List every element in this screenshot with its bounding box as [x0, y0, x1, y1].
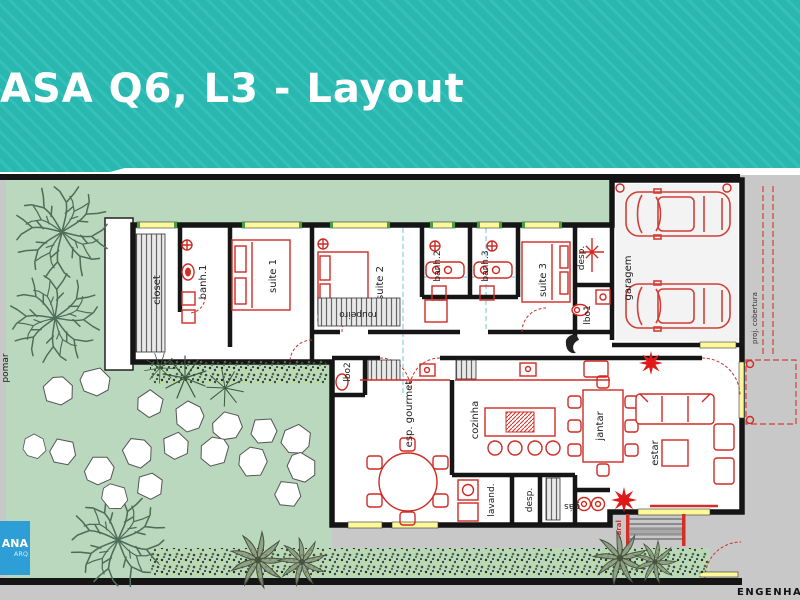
- room-label: estar: [650, 439, 661, 465]
- room-label: lbo1: [583, 305, 593, 324]
- room-label: suite 2: [375, 266, 386, 300]
- room-label: closet: [152, 275, 163, 305]
- room-label: banh.1: [198, 265, 209, 300]
- room-label: desp.: [525, 488, 535, 513]
- window: [700, 342, 736, 348]
- room-closet: closet: [136, 234, 165, 352]
- proj-cobertura-label: proj. cobertura: [751, 292, 759, 344]
- room-suite1: suite 1: [232, 240, 290, 310]
- plant-star-icon: [611, 487, 637, 513]
- room-label: gás: [564, 501, 580, 511]
- grill-icon: [368, 360, 400, 380]
- round-table-icon: [379, 453, 437, 511]
- room-label: lavand.: [487, 483, 497, 516]
- architect-logo: ANA ARQ: [0, 521, 30, 575]
- window: [330, 222, 390, 228]
- pomar-label: pomar: [1, 353, 11, 383]
- window: [137, 222, 177, 228]
- west-walkway: [105, 218, 133, 370]
- window: [477, 222, 502, 228]
- logo-line2: ARQ: [14, 550, 28, 558]
- logo-line1: ANA: [2, 538, 28, 550]
- room-label: banh.2: [433, 250, 443, 281]
- room-label: roupeiro: [339, 309, 377, 319]
- slide: closet banh.1 suite 1 suite 2 banh.2: [0, 0, 800, 600]
- room-label: jantar: [595, 410, 606, 441]
- window: [522, 222, 562, 228]
- bed-icon: [232, 240, 290, 310]
- window: [739, 362, 744, 418]
- room-label: garagem: [623, 256, 634, 301]
- window: [430, 222, 455, 228]
- room-label: banh.3: [481, 250, 491, 281]
- stove-icon: [506, 412, 534, 432]
- room-label: cozinha: [470, 401, 481, 439]
- window: [348, 522, 382, 528]
- window: [242, 222, 302, 228]
- room-suite3: suite 3: [522, 242, 570, 302]
- garage-floor: [616, 184, 738, 341]
- slide-title: ASA Q6, L3 - Layout: [0, 66, 465, 112]
- room-label: suite 3: [538, 263, 549, 297]
- fridge-icon: [456, 360, 476, 379]
- footer-brand: ENGENHARIA: [737, 587, 800, 598]
- title-banner: ASA Q6, L3 - Layout: [0, 0, 800, 172]
- room-label: esp. gourmet: [404, 381, 415, 448]
- shelves-icon: [546, 478, 560, 520]
- room-label: suite 1: [268, 259, 279, 293]
- room-label: lbo2: [343, 362, 353, 381]
- sofa-icon: [636, 394, 714, 424]
- window: [638, 509, 710, 515]
- room-label: desp.: [577, 246, 587, 271]
- plant-star-icon: [639, 351, 663, 375]
